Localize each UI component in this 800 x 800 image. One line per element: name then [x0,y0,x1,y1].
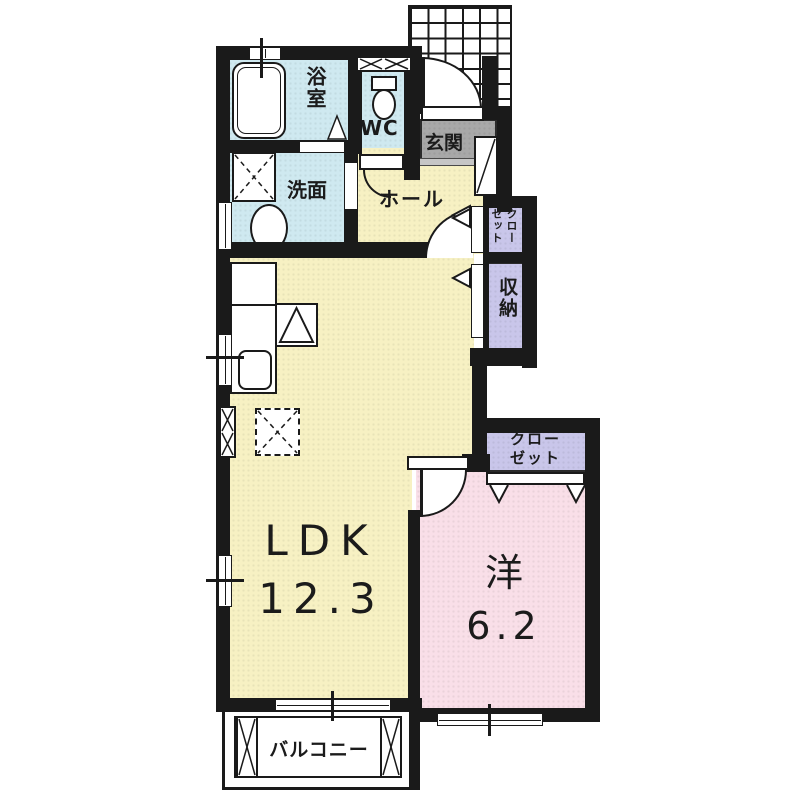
window-tick [260,38,263,78]
closet-hall-door-leaf-icon [450,207,472,229]
storage-door-strip [471,264,484,338]
window-bath-top [249,47,281,60]
window-tick [331,691,334,721]
room-label-hall: ホール [379,183,445,212]
shoe-cabinet-icon [474,136,498,196]
window-washroom-left [218,202,232,250]
closet-western-door-strip [486,472,585,485]
bathtub-icon [232,62,286,139]
window-ldk-left-upper [218,334,232,386]
entrance-step [412,158,480,166]
wall [216,242,428,258]
room-label-entrance: 玄関 [425,128,463,155]
floor-plan: 浴室 WC 洗面 玄関 ホール クローゼット 収納 LDK 12.3 洋 6.2… [0,0,800,800]
room-label-storage: 収納 [494,277,521,349]
bath-door-strip [299,141,345,153]
western-door-lintel [407,456,469,470]
window-tick [488,704,491,736]
room-label-wc: WC [360,116,399,140]
room-label-western: 洋 [452,542,556,597]
wall [486,252,524,263]
room-label-washroom: 洗面 [287,174,327,203]
washroom-door-strip [344,162,358,210]
room-label-closet-western-line1: クロー [484,430,587,449]
closet-western-fold-right-icon [566,485,586,504]
closet-hall-door-strip [471,206,484,253]
room-size-ldk: 12.3 [226,574,416,623]
stove-triangle-icon [275,303,318,347]
window-ldk-left-louver [219,406,236,458]
room-label-balcony: バルコニー [254,735,384,762]
wall [585,418,600,722]
room-label-closet-western-line2: ゼット [484,449,587,468]
room-size-western: 6.2 [452,604,556,648]
wc-door-strip [359,154,404,170]
front-door-slab-icon [421,106,484,121]
refrigerator-space-icon [255,408,300,456]
room-label-closet-hall: クローゼット [489,208,519,251]
window-tick [206,356,244,359]
window-wc-louver [356,56,412,72]
storage-door-leaf-icon [450,267,472,289]
room-label-ldk: LDK [226,516,416,565]
washing-machine-space-icon [232,152,276,202]
closet-western-fold-left-icon [489,485,509,504]
wall [522,196,537,368]
room-label-bath: 浴室 [301,66,330,122]
